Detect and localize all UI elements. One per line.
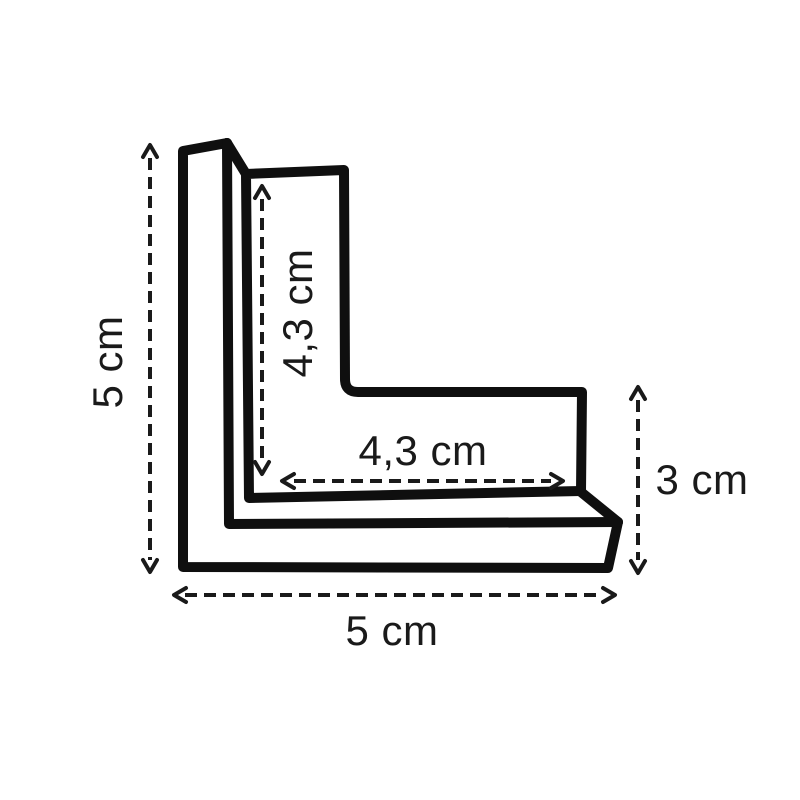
l-profile-shape <box>183 143 618 568</box>
arrow-right-icon <box>603 588 615 602</box>
inner-height-label: 4,3 cm <box>274 248 321 377</box>
diagram-canvas: 5 cm 5 cm 4,3 cm 4,3 cm 3 cm <box>0 0 800 800</box>
outer-width-label: 5 cm <box>345 607 438 654</box>
arrow-up-icon <box>143 145 157 157</box>
dimension-end-height: 3 cm <box>631 387 749 573</box>
corner-protector-diagram: 5 cm 5 cm 4,3 cm 4,3 cm 3 cm <box>0 0 800 800</box>
end-height-label: 3 cm <box>655 456 748 503</box>
dimension-outer-width: 5 cm <box>174 588 615 654</box>
arrow-down-icon <box>631 561 645 573</box>
dimension-outer-height: 5 cm <box>84 145 157 572</box>
inner-width-label: 4,3 cm <box>358 427 487 474</box>
arrow-down-icon <box>143 560 157 572</box>
outer-height-label: 5 cm <box>84 315 131 408</box>
arrow-up-icon <box>631 387 645 399</box>
arrow-left-icon <box>174 588 186 602</box>
